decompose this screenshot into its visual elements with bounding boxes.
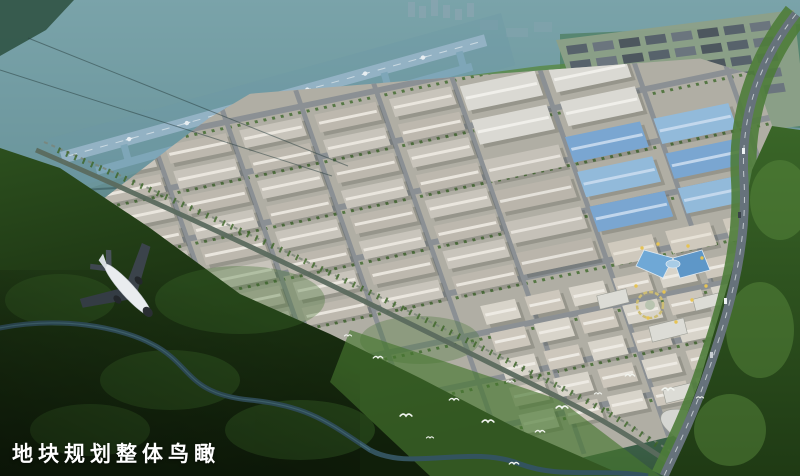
white-buildings [597, 289, 755, 423]
caption-title: 地块规划整体鸟瞰 [12, 438, 220, 468]
mid-warehouses [484, 144, 603, 279]
circular-plaza [637, 292, 663, 318]
airfield-apron [48, 13, 515, 191]
forest-texture [5, 266, 480, 460]
airplane-right-hstab [88, 255, 113, 280]
greenbelt [225, 52, 785, 142]
highway [664, 14, 796, 476]
distant-towers [408, 0, 552, 37]
white-factories [460, 52, 648, 149]
distant-fields [560, 24, 800, 128]
boundary-road [36, 150, 688, 476]
highway-cars [710, 148, 745, 358]
forest-clearing [330, 330, 660, 476]
airplane-nose [141, 305, 155, 319]
small-workshops [480, 243, 800, 438]
plaza-gold-accents [634, 242, 707, 323]
right-forest-texture [694, 160, 800, 466]
landmark-glass-roof [636, 250, 710, 278]
corner-trees [0, 0, 74, 56]
aerial-rendering: 地块规划整体鸟瞰 [0, 0, 800, 476]
power-lines [0, 38, 348, 176]
tan-blocks [607, 209, 778, 269]
right-forest [664, 126, 800, 476]
taxiway-strip [95, 63, 473, 175]
birds-flock [344, 335, 703, 464]
river-highlight [0, 323, 370, 450]
airplane-left-wing [108, 240, 168, 299]
forest [0, 148, 625, 476]
haze-background [0, 0, 800, 476]
residential-ground [556, 10, 800, 142]
pond [395, 97, 409, 102]
airplane-tail-fin [97, 254, 112, 269]
scene-canvas [0, 0, 800, 476]
airplane-left-hstab [96, 247, 121, 272]
distant-hills [0, 0, 800, 218]
airplane-fuselage [100, 260, 156, 320]
mall-building [655, 400, 749, 464]
commercial-center [597, 242, 755, 464]
airplane-right-wing [77, 268, 137, 327]
airplane [64, 226, 185, 346]
airport-runway [48, 13, 515, 191]
highway-centerline [664, 14, 796, 476]
canal [0, 168, 330, 196]
stream [250, 68, 730, 118]
residential-blocks [566, 21, 786, 117]
railway-track [44, 142, 694, 468]
parked-planes [125, 55, 433, 164]
blue-factories [565, 102, 766, 235]
airplane-engine [133, 275, 144, 286]
airplane-engine [112, 294, 123, 305]
runway-strip [60, 34, 487, 163]
industrial-park [62, 0, 800, 476]
warehouse-rows [89, 86, 523, 361]
highway-verge [664, 14, 796, 476]
roadside-trees [58, 150, 692, 470]
